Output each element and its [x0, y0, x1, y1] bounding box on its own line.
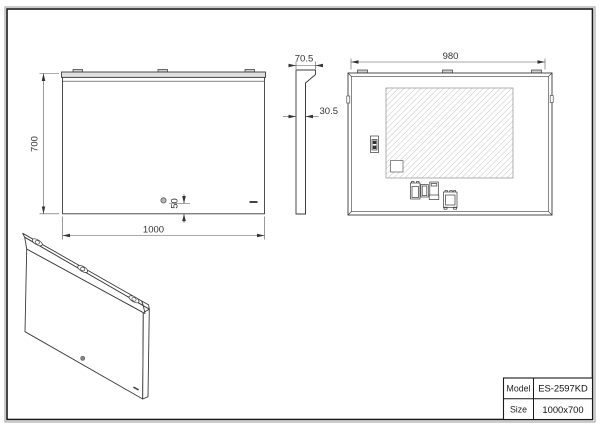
dim-front-width: 1000	[143, 225, 164, 236]
technical-drawing: 700 1000 50 70.5 30.5	[0, 0, 600, 425]
touch-sensor	[161, 198, 166, 203]
drawing-sheet: 700 1000 50 70.5 30.5	[0, 0, 600, 425]
side-clip	[347, 96, 350, 103]
top-rail	[62, 72, 266, 77]
logo-mark	[250, 201, 258, 203]
side-clip	[550, 96, 553, 103]
dim-back-width: 980	[443, 51, 459, 62]
side-view	[296, 70, 316, 214]
touch-sensor-3d	[81, 356, 85, 360]
driver-box	[421, 185, 429, 198]
dim-side-depth: 70.5	[295, 54, 314, 65]
perspective-view	[23, 233, 150, 399]
title-block-size-value: 1000x700	[542, 404, 583, 415]
terminal-block	[371, 136, 379, 153]
mirror-side-3d	[143, 309, 150, 399]
mirror-body-front	[63, 77, 265, 213]
back-panel-hatch	[386, 88, 513, 178]
junction-box	[444, 191, 458, 210]
access-opening	[391, 161, 404, 173]
title-block-model-value: ES-2597KD	[538, 383, 588, 394]
dim-sensor-offset: 50	[170, 198, 181, 209]
front-view	[62, 69, 266, 213]
driver-box	[429, 182, 439, 200]
dim-side-thickness: 30.5	[320, 106, 339, 117]
driver-box	[411, 182, 421, 200]
dim-front-height: 700	[30, 136, 41, 152]
title-block: Model ES-2597KD Size 1000x700	[504, 378, 593, 420]
title-block-size-label: Size	[510, 404, 527, 414]
back-view	[347, 70, 553, 215]
title-block-model-label: Model	[507, 384, 531, 394]
